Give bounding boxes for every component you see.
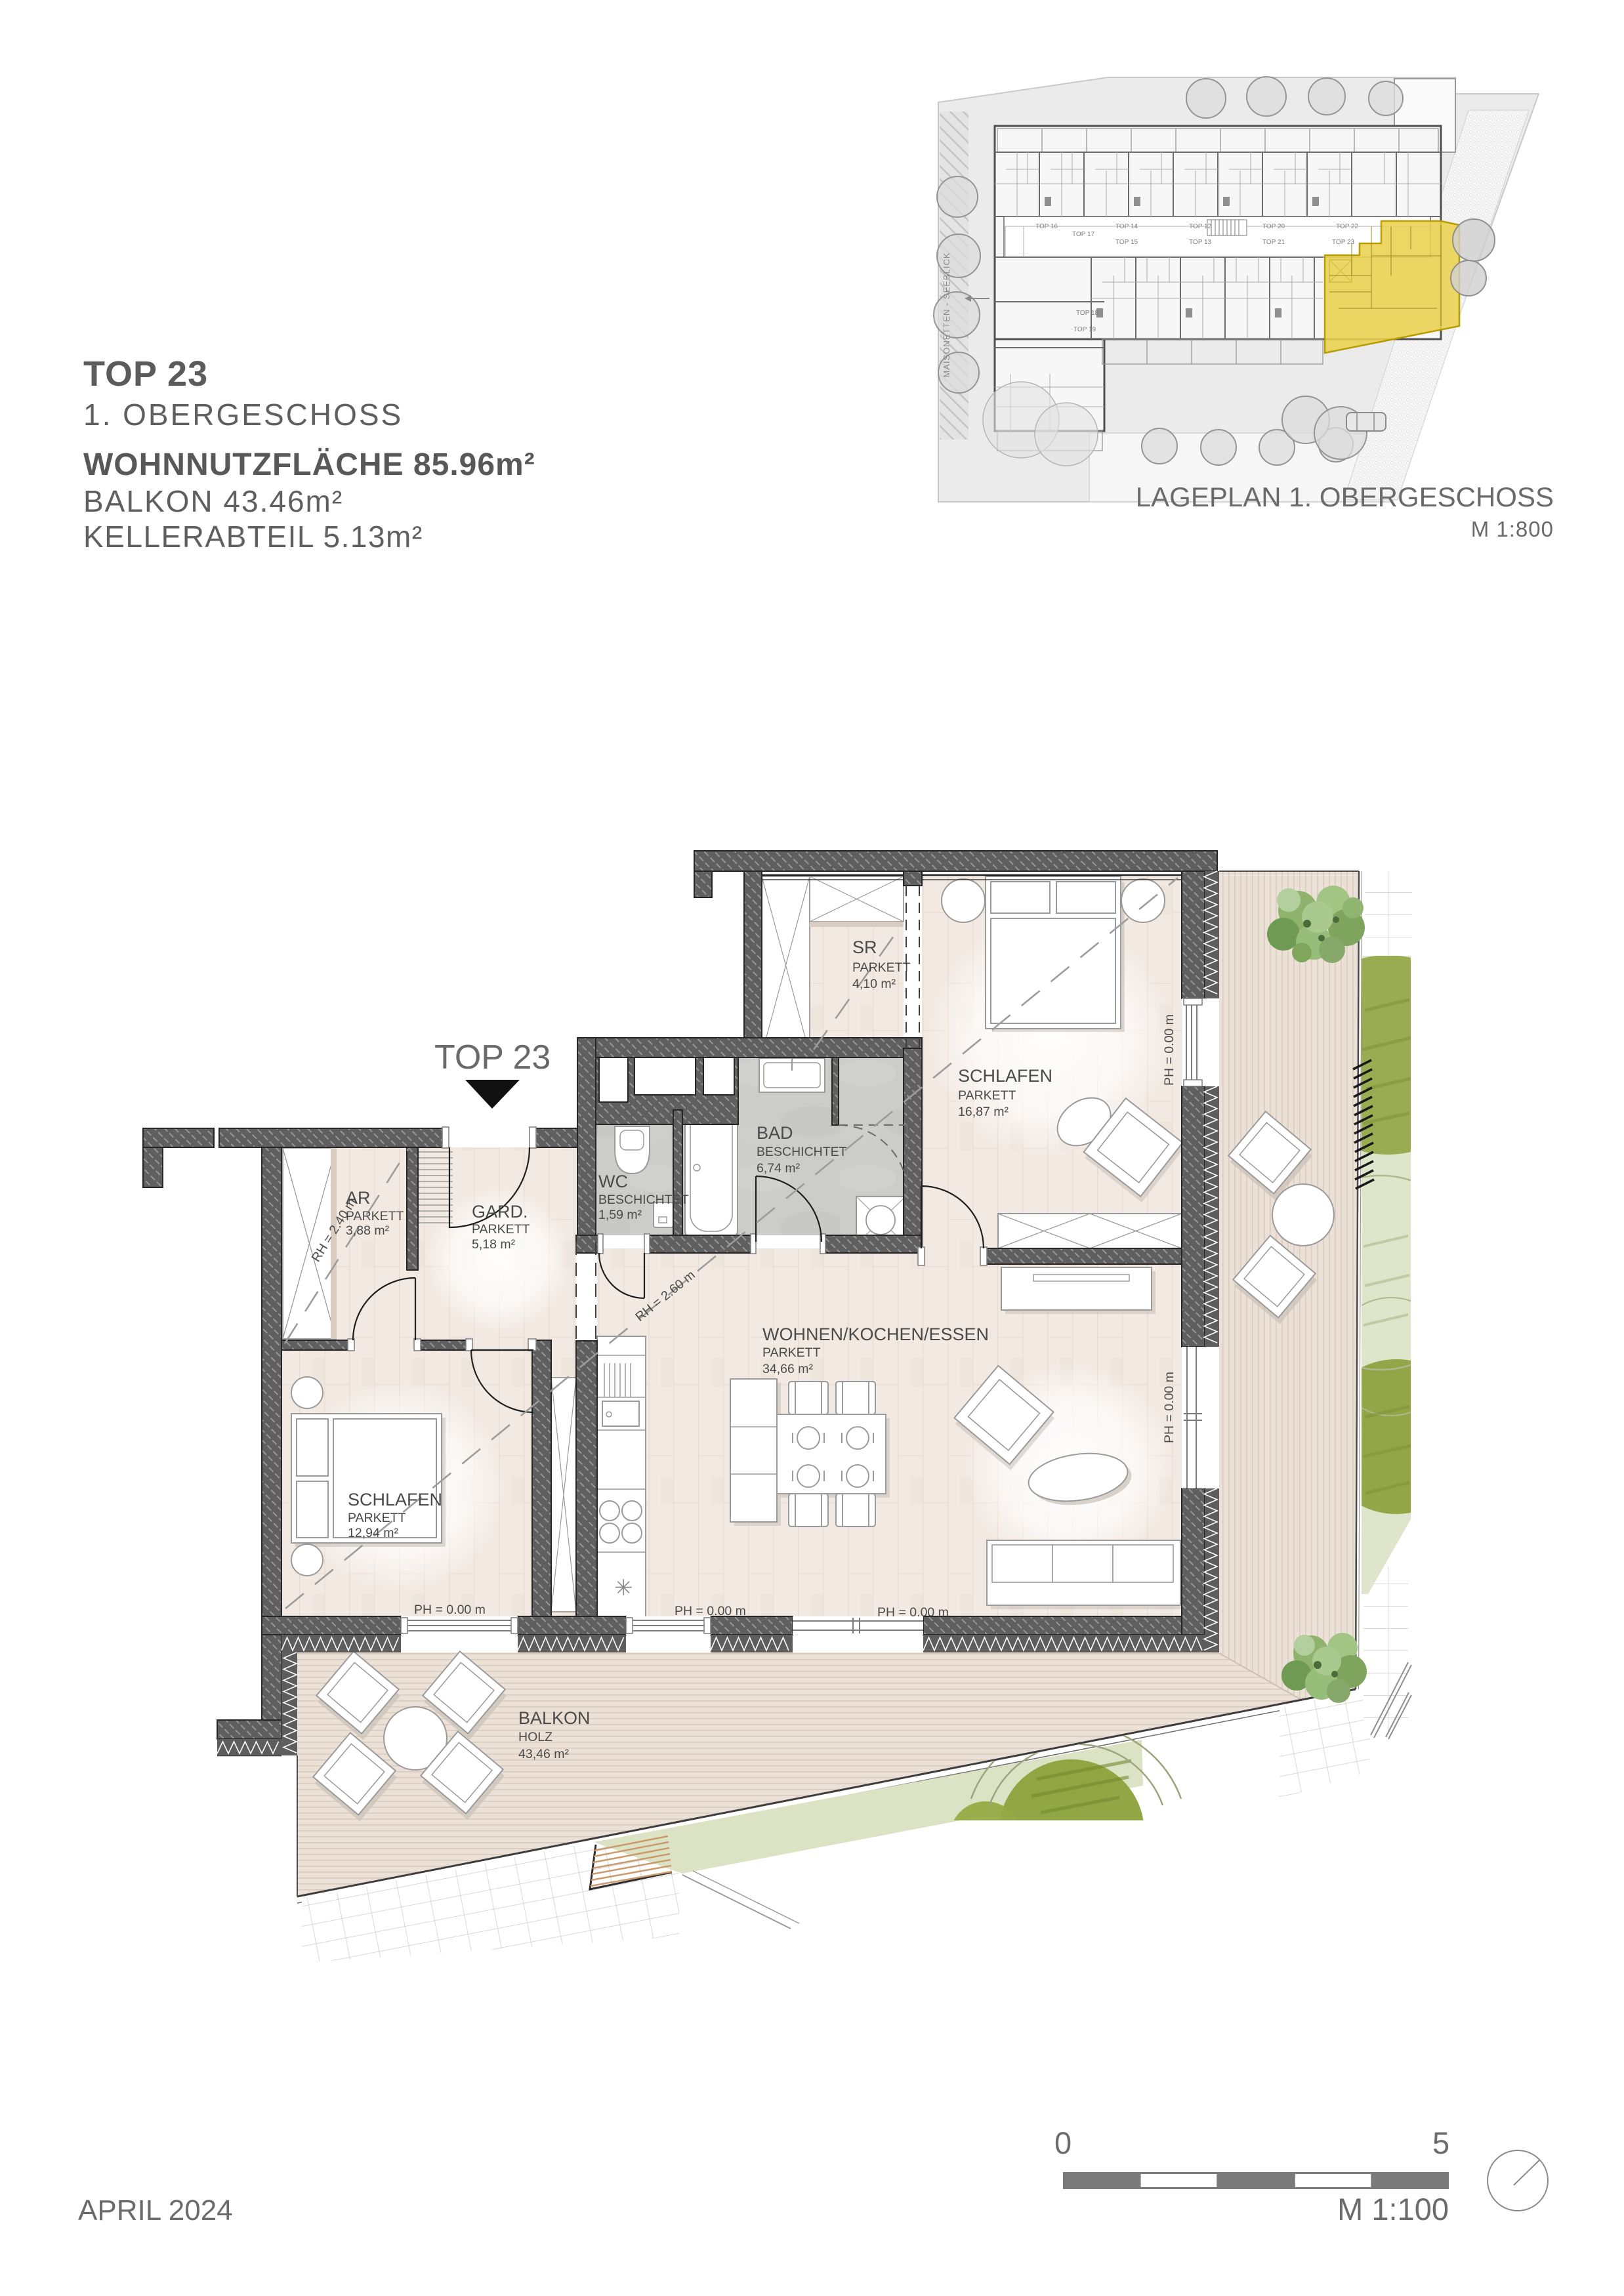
svg-text:TOP 23: TOP 23 <box>83 354 208 394</box>
svg-text:PARKETT: PARKETT <box>348 1511 406 1525</box>
svg-text:TOP 21: TOP 21 <box>1262 239 1285 246</box>
svg-text:M 1:800: M 1:800 <box>1471 517 1554 541</box>
svg-text:SCHLAFEN: SCHLAFEN <box>958 1066 1052 1086</box>
svg-text:SR: SR <box>852 937 877 957</box>
svg-text:TOP 15: TOP 15 <box>1115 239 1138 246</box>
svg-text:BAD: BAD <box>757 1123 793 1143</box>
svg-text:WC: WC <box>598 1172 628 1191</box>
svg-text:6,74 m²: 6,74 m² <box>757 1161 801 1176</box>
svg-text:TOP 22: TOP 22 <box>1336 223 1359 230</box>
svg-text:TOP 23: TOP 23 <box>1332 239 1355 246</box>
svg-text:HOLZ: HOLZ <box>518 1730 552 1744</box>
svg-text:TOP 12: TOP 12 <box>1189 223 1212 230</box>
svg-text:LAGEPLAN 1. OBERGESCHOSS: LAGEPLAN 1. OBERGESCHOSS <box>1136 482 1554 512</box>
svg-text:✳: ✳ <box>614 1576 633 1601</box>
svg-text:PH = 0.00 m: PH = 0.00 m <box>1162 1372 1176 1443</box>
svg-text:BALKON 43.46m²: BALKON 43.46m² <box>83 484 343 518</box>
svg-text:PH = 0.00 m: PH = 0.00 m <box>1162 1014 1176 1086</box>
svg-text:BESCHICHTET: BESCHICHTET <box>757 1145 847 1159</box>
svg-text:WOHNNUTZFLÄCHE 85.96m²: WOHNNUTZFLÄCHE 85.96m² <box>83 447 535 482</box>
svg-text:4,10 m²: 4,10 m² <box>852 977 896 991</box>
svg-text:GARD.: GARD. <box>472 1202 528 1221</box>
svg-text:TOP 23: TOP 23 <box>434 1038 551 1076</box>
svg-text:M 1:100: M 1:100 <box>1337 2192 1449 2226</box>
svg-text:3,88 m²: 3,88 m² <box>346 1223 390 1238</box>
svg-text:PH = 0.00 m: PH = 0.00 m <box>414 1603 486 1617</box>
svg-text:TOP 19: TOP 19 <box>1073 326 1096 333</box>
svg-text:5: 5 <box>1432 2125 1449 2160</box>
svg-text:MAISONETTEN - SEEBLICK: MAISONETTEN - SEEBLICK <box>942 252 951 377</box>
svg-text:BESCHICHTET: BESCHICHTET <box>598 1193 689 1207</box>
svg-text:PARKETT: PARKETT <box>346 1209 404 1223</box>
svg-text:5,18 m²: 5,18 m² <box>472 1237 516 1252</box>
svg-text:PH = 0.00 m: PH = 0.00 m <box>675 1604 746 1618</box>
svg-text:43,46 m²: 43,46 m² <box>518 1747 569 1761</box>
svg-text:PARKETT: PARKETT <box>958 1088 1016 1103</box>
svg-text:16,87 m²: 16,87 m² <box>958 1105 1009 1119</box>
svg-text:PH = 0.00 m: PH = 0.00 m <box>877 1605 949 1620</box>
svg-text:PARKETT: PARKETT <box>472 1222 530 1237</box>
svg-text:PARKETT: PARKETT <box>762 1345 821 1360</box>
svg-text:1. OBERGESCHOSS: 1. OBERGESCHOSS <box>83 398 403 432</box>
svg-text:1,59 m²: 1,59 m² <box>598 1208 642 1222</box>
svg-text:APRIL 2024: APRIL 2024 <box>78 2194 233 2226</box>
svg-text:PARKETT: PARKETT <box>852 960 911 975</box>
svg-text:TOP 18: TOP 18 <box>1076 310 1099 317</box>
svg-text:TOP 14: TOP 14 <box>1115 223 1138 230</box>
svg-text:TOP 13: TOP 13 <box>1189 239 1212 246</box>
svg-text:34,66 m²: 34,66 m² <box>762 1362 813 1376</box>
svg-text:WOHNEN/KOCHEN/ESSEN: WOHNEN/KOCHEN/ESSEN <box>762 1324 989 1344</box>
svg-text:0: 0 <box>1054 2125 1072 2160</box>
svg-text:KELLERABTEIL 5.13m²: KELLERABTEIL 5.13m² <box>83 520 423 554</box>
svg-text:12,94 m²: 12,94 m² <box>348 1526 398 1540</box>
svg-text:TOP 17: TOP 17 <box>1072 231 1095 238</box>
svg-text:BALKON: BALKON <box>518 1708 591 1728</box>
svg-text:SCHLAFEN: SCHLAFEN <box>348 1490 442 1509</box>
svg-text:TOP 20: TOP 20 <box>1262 223 1285 230</box>
svg-text:TOP 16: TOP 16 <box>1035 223 1058 230</box>
